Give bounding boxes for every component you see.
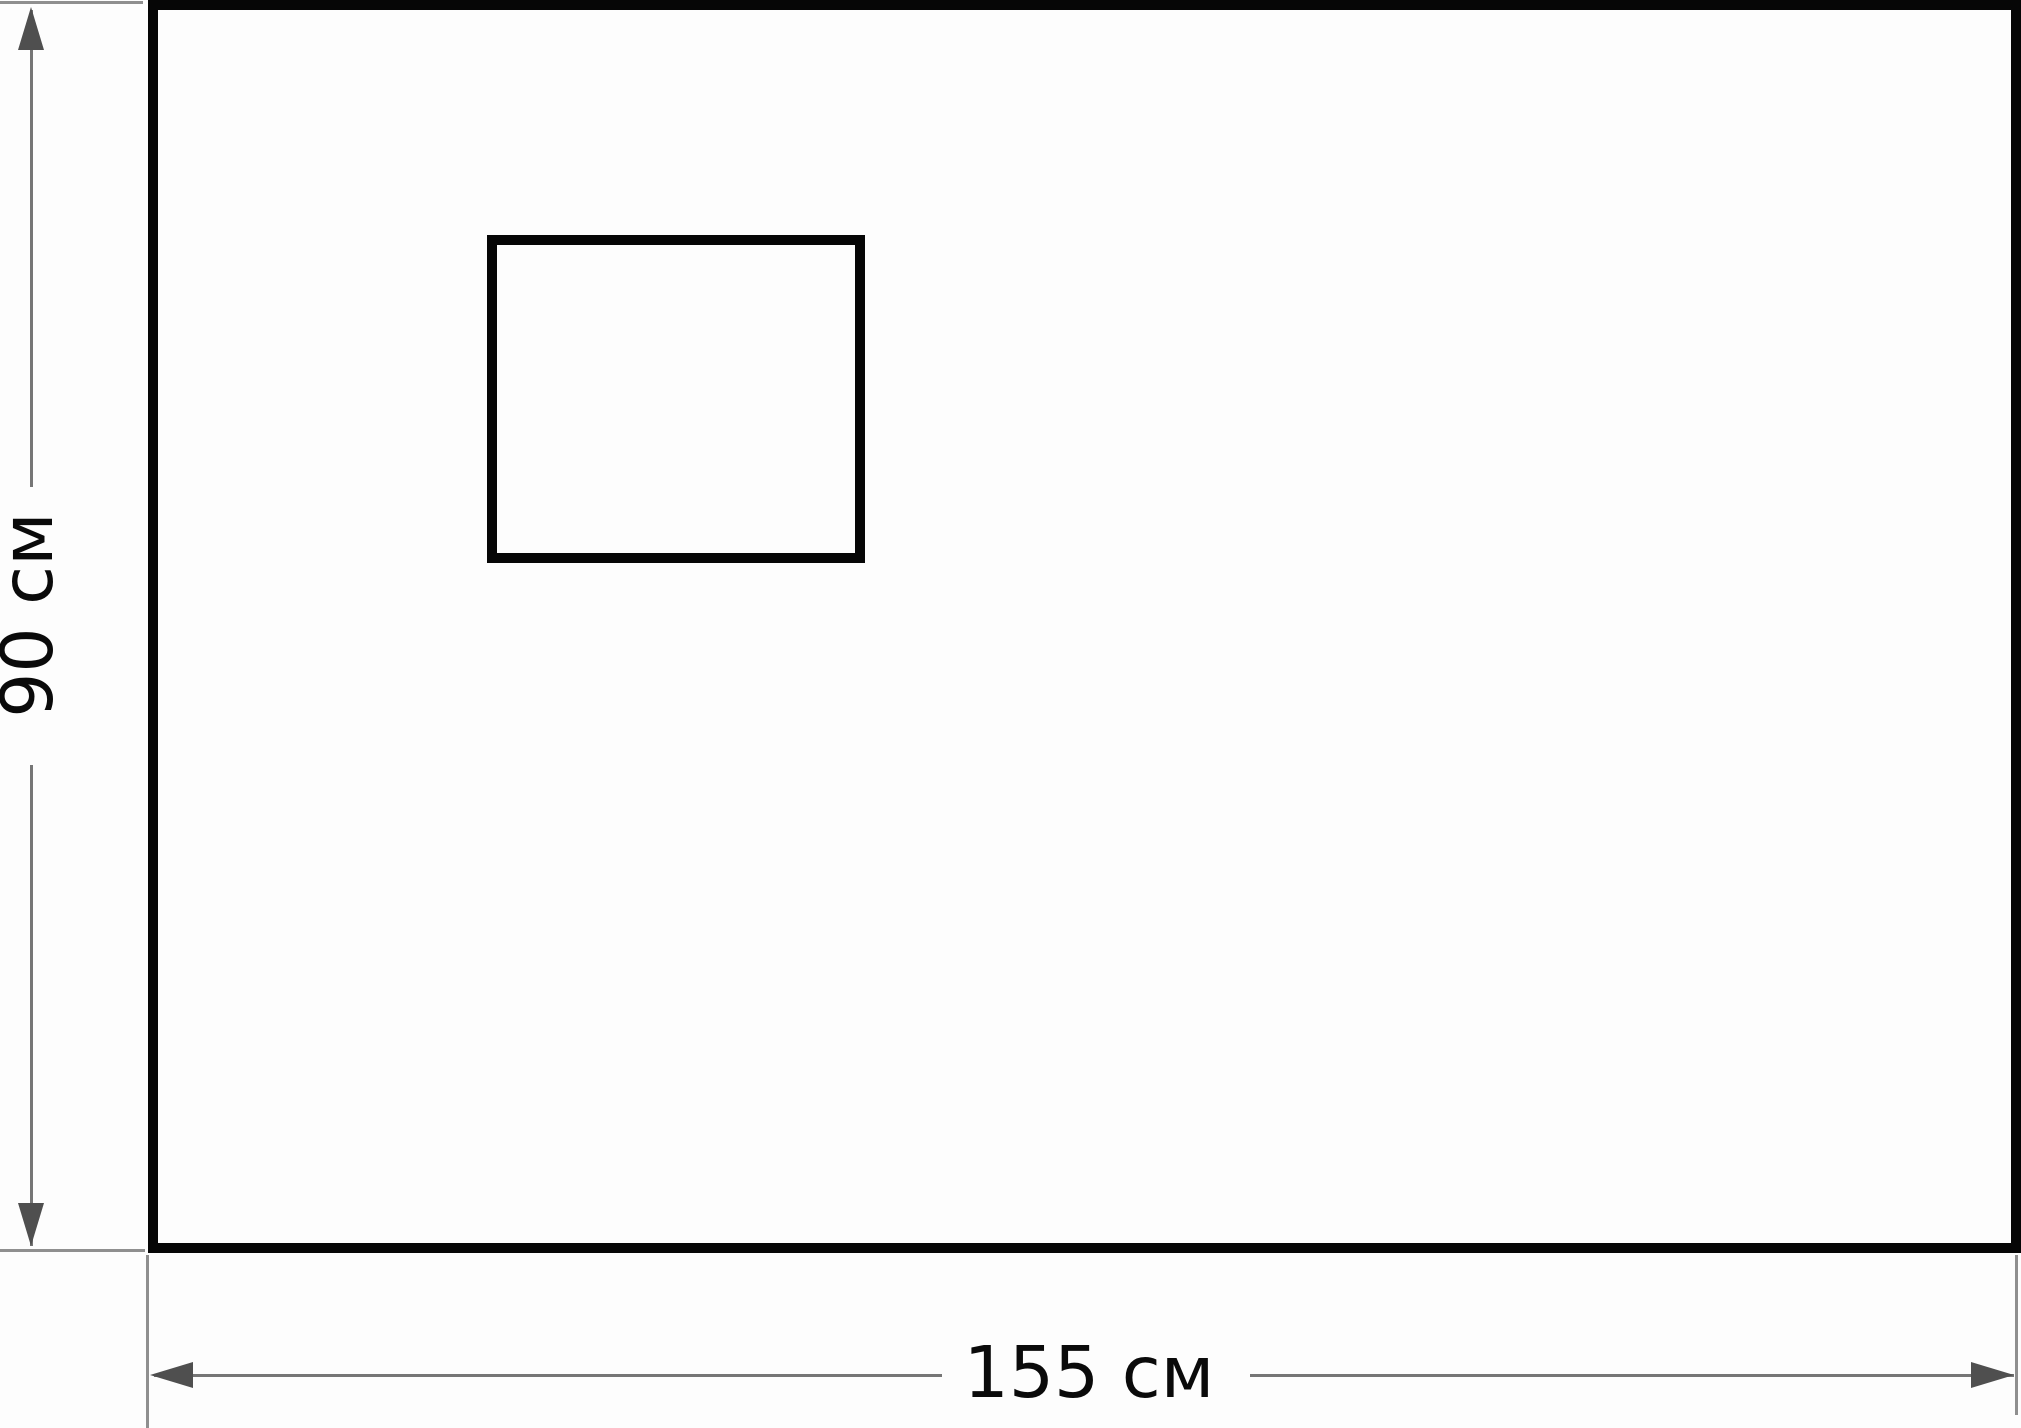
arrow-right-icon <box>1971 1362 2014 1388</box>
arrow-down-icon <box>18 1203 44 1246</box>
arrow-up-icon <box>18 7 44 50</box>
width-dimension-line-left <box>154 1374 942 1377</box>
height-dimension-line-upper <box>30 10 33 487</box>
height-dimension-line-lower <box>30 765 33 1246</box>
width-extension-line-left <box>146 1255 149 1428</box>
arrow-left-icon <box>150 1362 193 1388</box>
width-dimension-label: 155 см <box>889 1333 1289 1413</box>
height-extension-line-bottom <box>0 1249 145 1252</box>
outer-rectangle <box>148 0 2021 1253</box>
height-extension-line-top <box>0 1 143 4</box>
diagram-canvas: 90 см 155 см <box>0 0 2021 1428</box>
height-dimension-label: 90 см <box>0 465 68 765</box>
inner-rectangle <box>487 235 865 563</box>
width-extension-line-right <box>2015 1255 2018 1415</box>
width-dimension-line-right <box>1250 1374 2014 1377</box>
